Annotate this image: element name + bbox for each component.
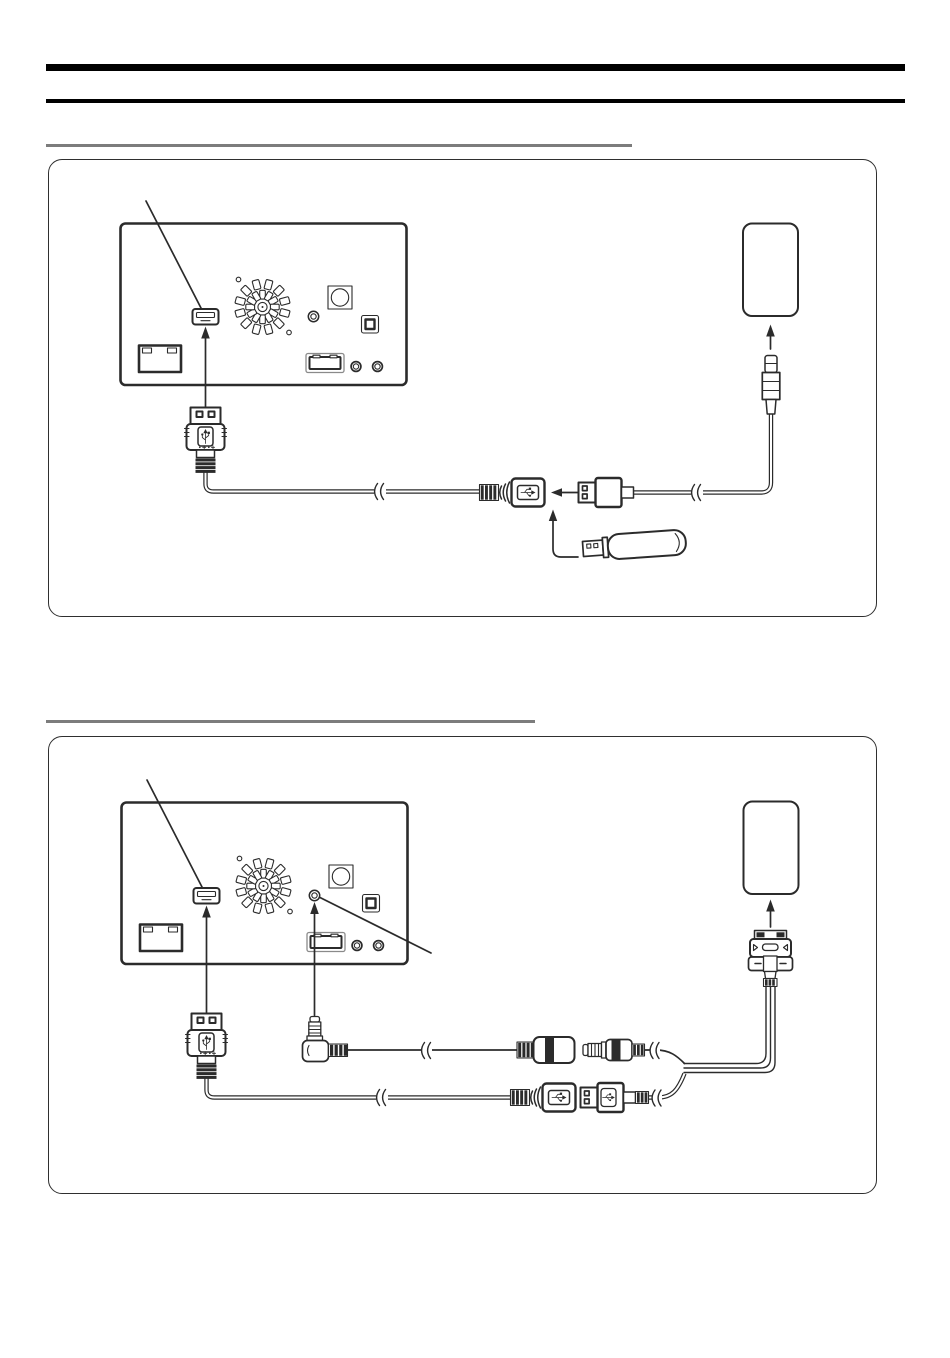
section1-panel	[48, 159, 877, 617]
header-rule-thick	[46, 64, 905, 71]
header-rule-thin	[46, 99, 905, 103]
section2-heading-rule	[46, 720, 535, 723]
section1-heading-rule	[46, 144, 632, 147]
manual-page	[0, 0, 950, 1358]
section2-panel	[48, 736, 877, 1194]
